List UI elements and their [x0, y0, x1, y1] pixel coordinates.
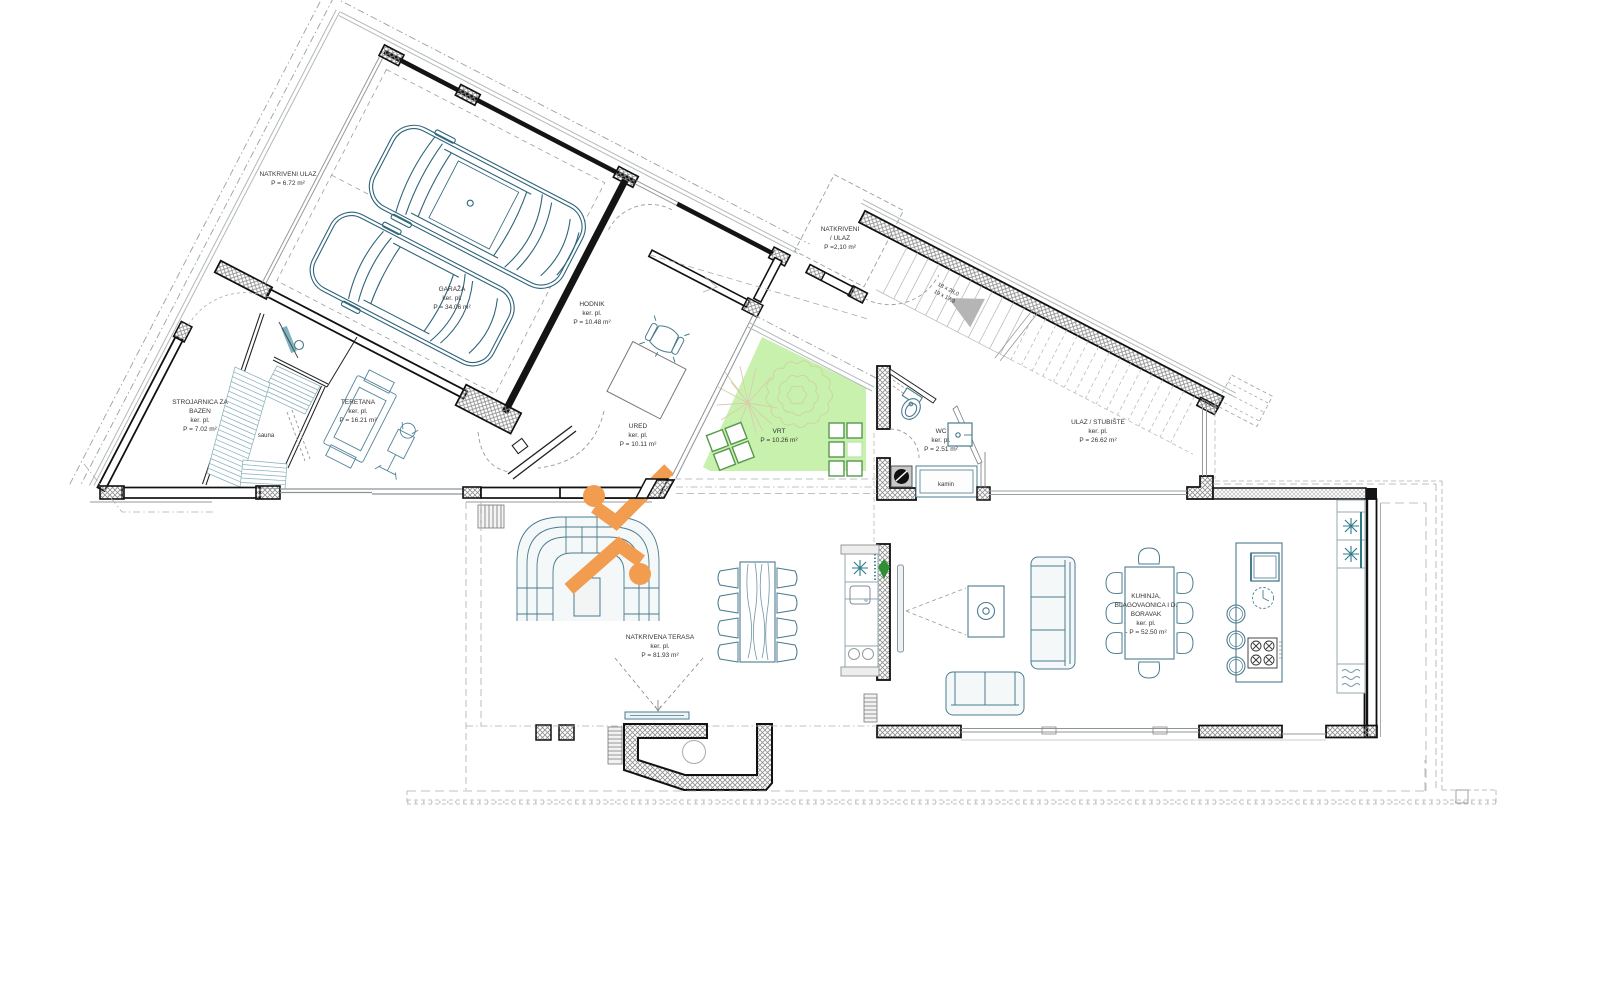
svg-text:P = 34.06 m²: P = 34.06 m² — [433, 304, 471, 311]
svg-text:ker. pl.: ker. pl. — [348, 408, 367, 415]
svg-text:P = 10.11 m²: P = 10.11 m² — [620, 441, 658, 448]
svg-text:BORAVAK: BORAVAK — [1131, 611, 1162, 618]
svg-text:P = 7.02 m²: P = 7.02 m² — [183, 426, 217, 433]
svg-text:/ ULAZ: / ULAZ — [830, 235, 850, 242]
svg-text:P =2,10 m²: P =2,10 m² — [824, 244, 857, 251]
svg-text:ULAZ / STUBIŠTE: ULAZ / STUBIŠTE — [1071, 417, 1125, 426]
svg-text:KUHINJA,: KUHINJA, — [1131, 593, 1161, 600]
svg-text:HODNIK: HODNIK — [579, 301, 605, 308]
svg-text:kamin: kamin — [938, 482, 954, 488]
svg-text:GARAŽA: GARAŽA — [439, 284, 466, 293]
svg-text:ker. pl.: ker. pl. — [190, 417, 209, 424]
svg-text:P = 2.51 m²: P = 2.51 m² — [924, 446, 958, 453]
svg-text:ker. pl.: ker. pl. — [1088, 428, 1107, 435]
svg-text:WC: WC — [936, 428, 947, 435]
svg-text:ker. pl.: ker. pl. — [1136, 620, 1155, 627]
svg-text:URED: URED — [629, 423, 648, 430]
svg-text:TERETANA: TERETANA — [341, 399, 376, 406]
svg-text:VRT: VRT — [773, 428, 786, 435]
svg-text:ker. pl.: ker. pl. — [582, 310, 601, 317]
svg-text:BLAGOVAONICA I D.: BLAGOVAONICA I D. — [1115, 602, 1178, 609]
svg-text:ker. pl.: ker. pl. — [442, 295, 461, 302]
svg-text:ker. pl.: ker. pl. — [628, 432, 647, 439]
svg-text:P = 6.72 m²: P = 6.72 m² — [271, 180, 305, 187]
svg-text:P = 10.48 m²: P = 10.48 m² — [573, 319, 611, 326]
svg-text:sauna: sauna — [258, 433, 275, 439]
svg-text:STROJARNICA ZA: STROJARNICA ZA — [172, 399, 228, 406]
svg-text:P = 81.93 m²: P = 81.93 m² — [641, 652, 679, 659]
svg-text:NATKRIVENI: NATKRIVENI — [821, 226, 860, 233]
svg-text:ker. pl.: ker. pl. — [650, 643, 669, 650]
svg-text:NATKRIVENI ULAZ: NATKRIVENI ULAZ — [260, 171, 317, 178]
svg-text:ker. pl.: ker. pl. — [931, 437, 950, 444]
svg-text:- P = 52.50 m²: - P = 52.50 m² — [1125, 629, 1167, 636]
svg-text:P = 26.62 m²: P = 26.62 m² — [1079, 437, 1117, 444]
svg-text:NATKRIVENA TERASA: NATKRIVENA TERASA — [626, 634, 695, 641]
svg-text:BAZEN: BAZEN — [189, 408, 211, 415]
svg-text:P = 16.21 m²: P = 16.21 m² — [339, 417, 377, 424]
svg-text:P = 10.26 m²: P = 10.26 m² — [760, 437, 798, 444]
